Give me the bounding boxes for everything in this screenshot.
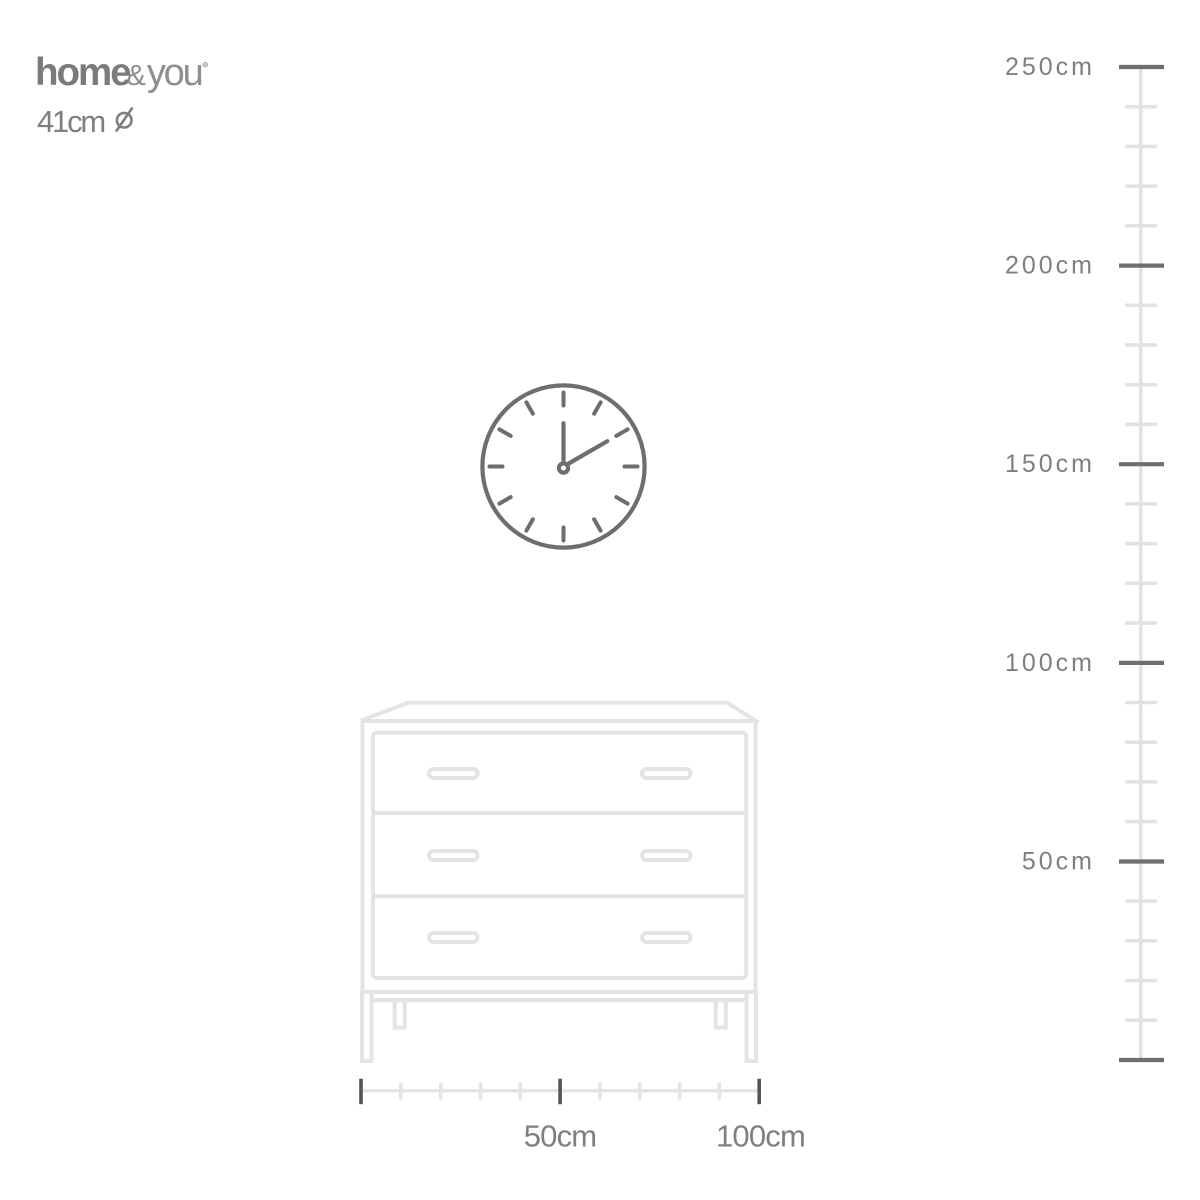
svg-text:50cm: 50cm <box>1022 847 1095 875</box>
svg-text:250cm: 250cm <box>1005 53 1095 81</box>
svg-text:50cm: 50cm <box>524 1119 597 1154</box>
svg-text:100cm: 100cm <box>716 1119 805 1154</box>
svg-text:150cm: 150cm <box>1005 450 1095 478</box>
svg-text:home: home <box>35 51 131 94</box>
svg-text:200cm: 200cm <box>1005 252 1095 280</box>
svg-text:100cm: 100cm <box>1005 649 1095 677</box>
svg-text:41cm: 41cm <box>37 104 104 139</box>
